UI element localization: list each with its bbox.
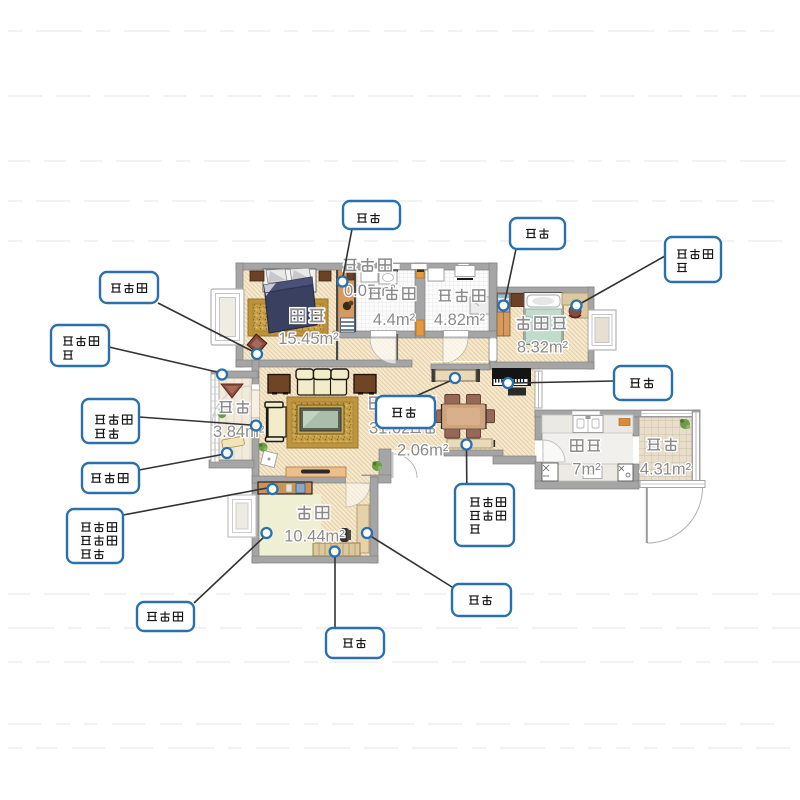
svg-text:10.44m²: 10.44m² [284,528,345,546]
svg-text:15.45m²: 15.45m² [278,330,339,348]
svg-text:8.32m²: 8.32m² [517,339,569,357]
svg-text:4.31m²: 4.31m² [640,461,692,479]
svg-text:4.82m²: 4.82m² [434,311,486,329]
svg-text:7m²: 7m² [572,461,601,479]
svg-text:2.06m²: 2.06m² [397,442,449,460]
svg-text:4.4m²: 4.4m² [373,311,416,329]
